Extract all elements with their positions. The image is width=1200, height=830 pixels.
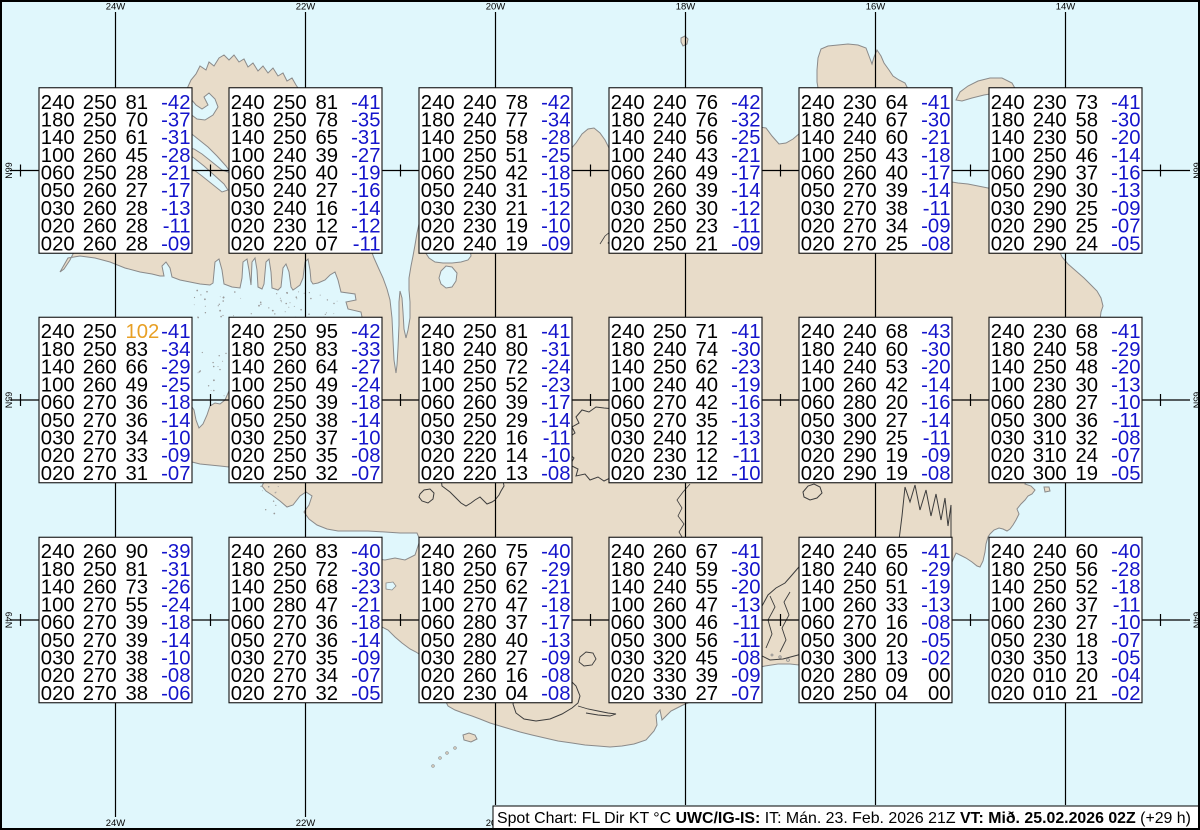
svg-text:958364493938373532: 958364493938373532 [316, 321, 339, 485]
svg-text:250250260250250250250250250: 250250260250250250250250250 [273, 321, 307, 485]
svg-text:240180140100060050030020020: 240180140100060050030020020 [801, 92, 835, 256]
svg-text:-40-29-21-18-17-13-09-08-08: -40-29-21-18-17-13-09-08-08 [541, 541, 570, 705]
svg-text:-42-34-28-25-18-15-12-10-09: -42-34-28-25-18-15-12-10-09 [541, 92, 570, 256]
svg-text:240180140100060050030020020: 240180140100060050030020020 [611, 541, 645, 705]
svg-text:-42-32-25-21-17-14-12-11-09: -42-32-25-21-17-14-12-11-09 [731, 92, 760, 256]
svg-text:260250250270280280280260230: 260250250270280280280260230 [463, 541, 497, 705]
svg-text:-41-29-20-13-10-11-08-07-05: -41-29-20-13-10-11-08-07-05 [1111, 321, 1140, 485]
svg-text:240180140100060050030020020: 240180140100060050030020020 [611, 321, 645, 485]
svg-text:-41-31-24-23-17-14-11-10-08: -41-31-24-23-17-14-11-10-08 [541, 321, 570, 485]
svg-text:240180140100060050030020020: 240180140100060050030020020 [421, 92, 455, 256]
svg-text:787758514231211919: 787758514231211919 [506, 92, 529, 256]
svg-text:250250260260270270270270270: 250250260260270270270270270 [83, 321, 117, 485]
svg-text:686053422027251919: 686053422027251919 [886, 321, 909, 485]
svg-text:-41-30-21-18-17-14-11-09-08: -41-30-21-18-17-14-11-09-08 [921, 92, 950, 256]
svg-text:250240250250260250220220220: 250240250250260250220220220 [463, 321, 497, 485]
svg-text:66N: 66N [4, 162, 14, 179]
svg-text:837268473636353432: 837268473636353432 [316, 541, 339, 705]
svg-text:717462404235121212: 717462404235121212 [696, 321, 719, 485]
svg-text:-40-30-23-21-18-14-09-07-05: -40-30-23-21-18-14-09-07-05 [351, 541, 380, 705]
svg-text:-42-37-31-28-21-17-13-11-09: -42-37-31-28-21-17-13-11-09 [161, 92, 190, 256]
svg-text:240180140100060050030020020: 240180140100060050030020020 [801, 541, 835, 705]
svg-text:240180140100060050030020020: 240180140100060050030020020 [231, 541, 265, 705]
svg-text:735850463730252524: 735850463730252524 [1076, 92, 1099, 256]
svg-text:767656434939302321: 767656434939302321 [696, 92, 719, 256]
svg-text:240180140100060050030020020: 240180140100060050030020020 [41, 92, 75, 256]
svg-text:240180140100060050030020020: 240180140100060050030020020 [421, 541, 455, 705]
svg-text:Spot Chart: FL Dir KT °C UWC/I: Spot Chart: FL Dir KT °C UWC/IG-IS: IT: … [497, 810, 1191, 827]
svg-text:-41-30-20-14-16-13-09-07-05: -41-30-20-14-16-13-09-07-05 [1111, 92, 1140, 256]
svg-text:22W: 22W [296, 818, 316, 829]
svg-text:-43-30-20-14-16-14-11-09-08: -43-30-20-14-16-14-11-09-08 [921, 321, 950, 485]
svg-text:240240250260270300300280250: 240240250260270300300280250 [843, 541, 877, 705]
svg-text:817865394027161207: 817865394027161207 [316, 92, 339, 256]
svg-text:240180140100060050030020020: 240180140100060050030020020 [231, 321, 265, 485]
svg-text:260250250280270270270270270: 260250250280270270270270270 [273, 541, 307, 705]
svg-text:605652372718132021: 605652372718132021 [1076, 541, 1099, 705]
svg-text:-41-30-23-19-16-13-13-11-10: -41-30-23-19-16-13-13-11-10 [731, 321, 760, 485]
svg-text:756762473740271604: 756762473740271604 [506, 541, 529, 705]
svg-text:260250260270270270270270270: 260250260270270270270270270 [83, 541, 117, 705]
svg-text:64N: 64N [4, 612, 14, 629]
svg-text:-40-28-18-11-10-07-05-04-02: -40-28-18-11-10-07-05-04-02 [1111, 541, 1140, 705]
svg-text:240180140100060050030020020: 240180140100060050030020020 [611, 92, 645, 256]
svg-text:14W: 14W [1056, 2, 1076, 13]
svg-text:230240240250260270270270270: 230240240250260270270270270 [843, 92, 877, 256]
svg-text:908173553939383838: 908173553939383838 [126, 541, 149, 705]
svg-text:-41-35-31-27-19-16-14-12-11: -41-35-31-27-19-16-14-12-11 [351, 92, 380, 256]
svg-text:240180140100060050030020020: 240180140100060050030020020 [801, 321, 835, 485]
svg-text:240180140100060050030020020: 240180140100060050030020020 [41, 321, 75, 485]
svg-text:250250250240250240240230220: 250250250240250240240230220 [273, 92, 307, 256]
svg-text:-42-33-27-24-18-14-10-08-07: -42-33-27-24-18-14-10-08-07 [351, 321, 380, 485]
svg-text:18W: 18W [676, 2, 696, 13]
svg-text:646760434039383425: 646760434039383425 [886, 92, 909, 256]
svg-text:240180140100060050030020020: 240180140100060050030020020 [421, 321, 455, 485]
svg-text:260240240260300300320330330: 260240240260300300320330330 [653, 541, 687, 705]
svg-text:240180140100060050030020020: 240180140100060050030020020 [991, 92, 1025, 256]
svg-text:240250250260230230350010010: 240250250260230230350010010 [1033, 541, 1067, 705]
svg-text:22W: 22W [296, 2, 316, 13]
svg-text:24W: 24W [106, 818, 126, 829]
svg-text:685848302736322419: 685848302736322419 [1076, 321, 1099, 485]
svg-text:818072523929161413: 818072523929161413 [506, 321, 529, 485]
svg-text:240180140100060050030020020: 240180140100060050030020020 [991, 321, 1025, 485]
svg-text:65N: 65N [4, 392, 14, 409]
svg-text:240240240260280300290290290: 240240240260280300290290290 [843, 321, 877, 485]
svg-text:20W: 20W [486, 2, 506, 13]
svg-text:240180140100060050030020020: 240180140100060050030020020 [231, 92, 265, 256]
svg-text:656051331620130904: 656051331620130904 [886, 541, 909, 705]
svg-text:-41-34-29-25-18-14-10-09-07: -41-34-29-25-18-14-10-09-07 [161, 321, 190, 485]
svg-text:240180140100060050030020020: 240180140100060050030020020 [41, 541, 75, 705]
svg-text:675955474656453927: 675955474656453927 [696, 541, 719, 705]
svg-text:240240240240260260260250250: 240240240240260260260250250 [653, 92, 687, 256]
svg-text:-39-31-26-24-18-14-10-08-06: -39-31-26-24-18-14-10-08-06 [161, 541, 190, 705]
svg-text:250250250260250260260260260: 250250250260250260260260260 [83, 92, 117, 256]
svg-text:817061452827282828: 817061452827282828 [126, 92, 149, 256]
svg-text:230240250230280300310310300: 230240250230280300310310300 [1033, 321, 1067, 485]
svg-text:16W: 16W [866, 2, 886, 13]
svg-text:230240230250290290290290290: 230240230250290290290290290 [1033, 92, 1067, 256]
svg-text:240180140100060050030020020: 240180140100060050030020020 [991, 541, 1025, 705]
svg-text:250240250240270270240230230: 250240250240270270240230230 [653, 321, 687, 485]
svg-text:-41-30-20-13-11-11-08-09-07: -41-30-20-13-11-11-08-09-07 [731, 541, 760, 705]
svg-text:240240250250250240230230240: 240240250250250240230230240 [463, 92, 497, 256]
svg-text:24W: 24W [106, 2, 126, 13]
